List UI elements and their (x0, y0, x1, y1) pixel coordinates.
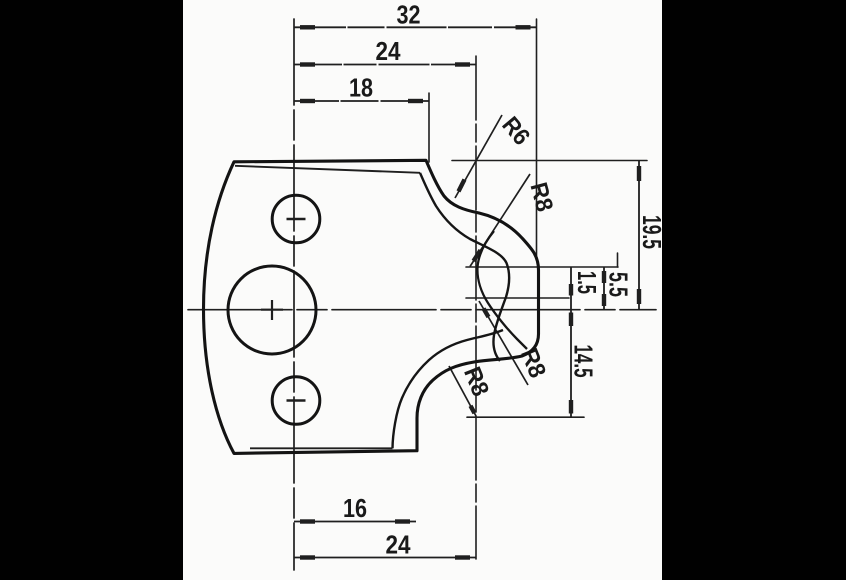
svg-text:19.5: 19.5 (637, 215, 667, 249)
svg-text:32: 32 (397, 0, 421, 30)
svg-text:16: 16 (343, 493, 367, 523)
svg-text:5.5: 5.5 (604, 272, 634, 297)
svg-text:14.5: 14.5 (569, 345, 599, 378)
svg-text:24: 24 (376, 36, 401, 66)
svg-text:1.5: 1.5 (572, 271, 602, 294)
svg-text:24: 24 (386, 530, 411, 560)
svg-text:18: 18 (349, 73, 373, 103)
